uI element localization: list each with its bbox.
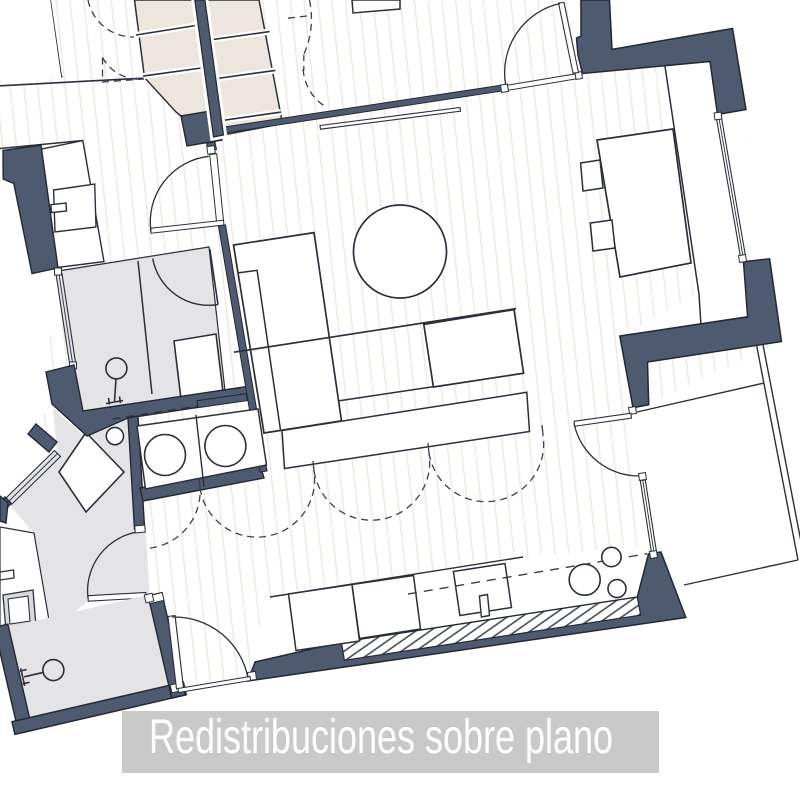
svg-text:Redistribuciones sobre plano: Redistribuciones sobre plano [149, 710, 613, 763]
